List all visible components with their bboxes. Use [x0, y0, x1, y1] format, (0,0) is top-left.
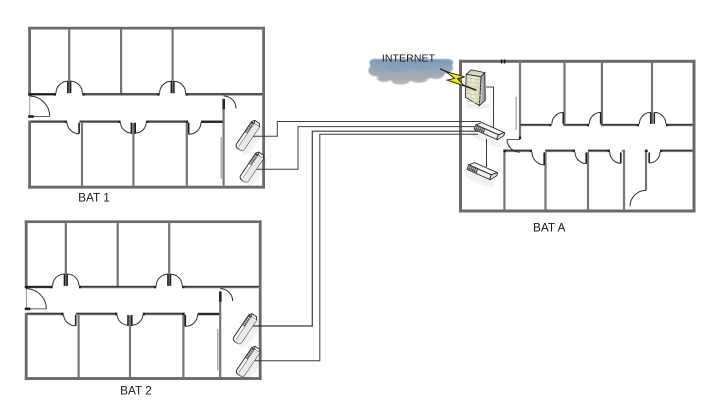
svg-text:BAT 1: BAT 1 — [78, 190, 110, 204]
svg-text:BAT 2: BAT 2 — [120, 383, 152, 397]
svg-text:INTERNET: INTERNET — [382, 52, 436, 64]
svg-text:BAT A: BAT A — [533, 220, 565, 234]
